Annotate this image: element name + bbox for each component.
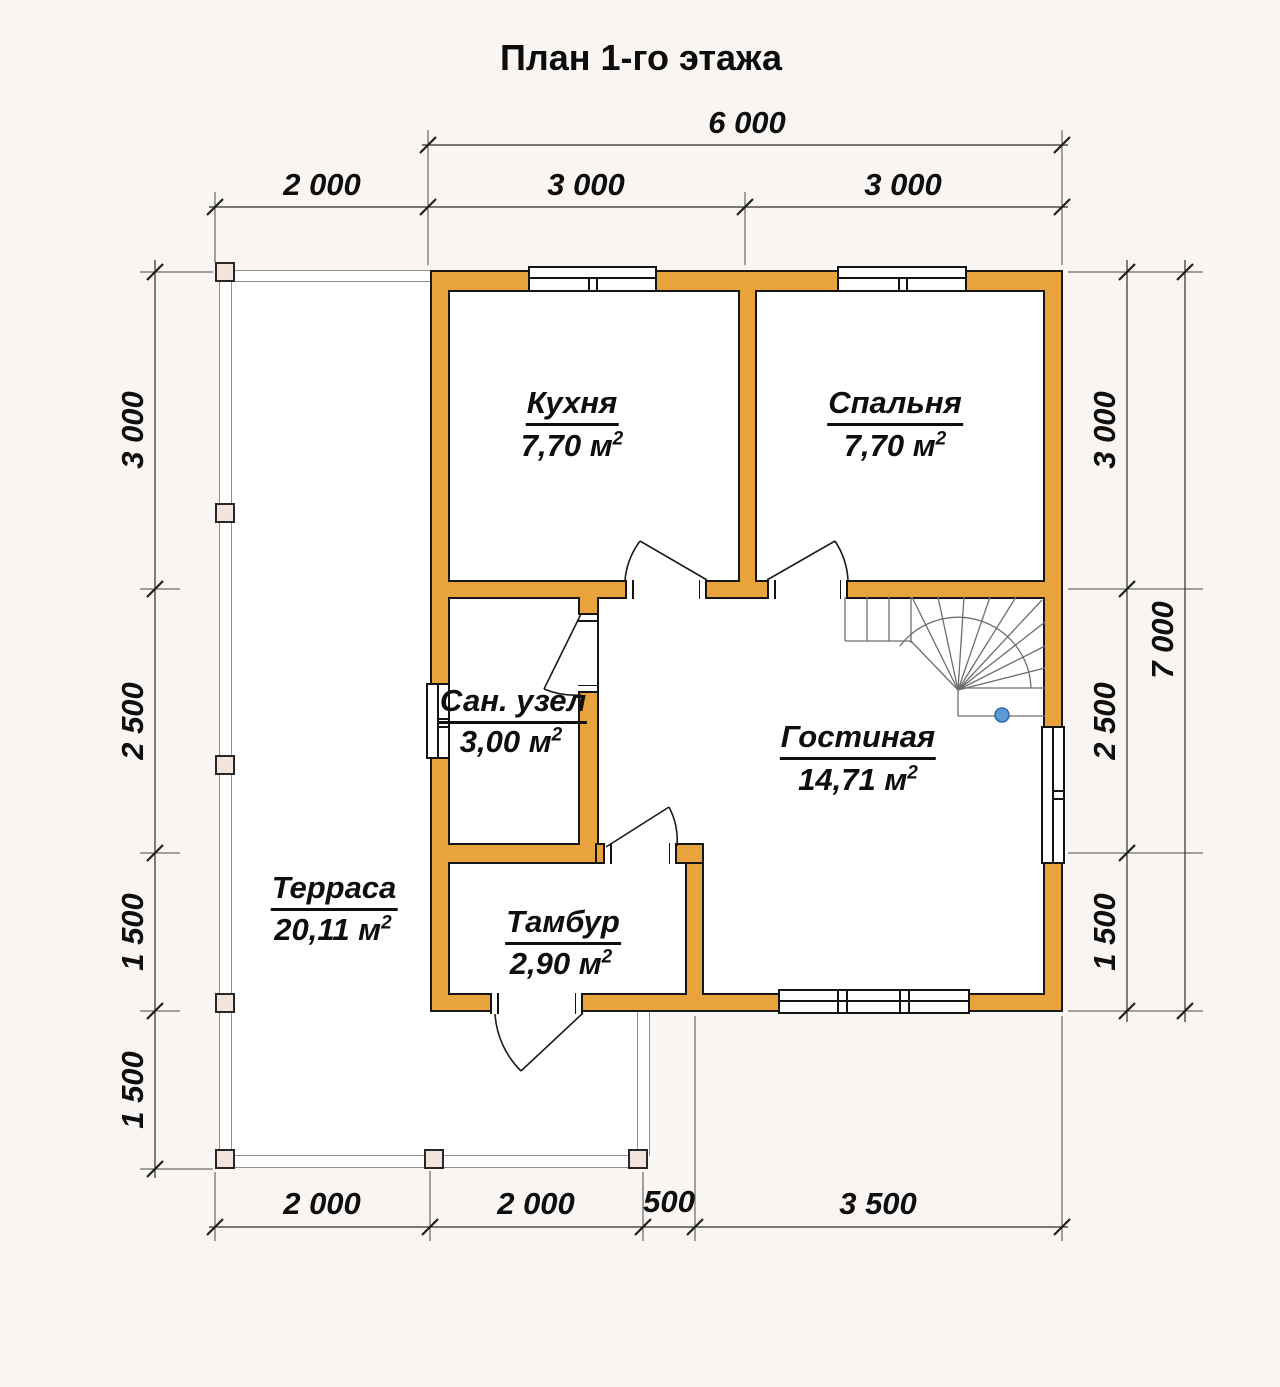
terrace-post xyxy=(215,503,235,523)
room-area-bathroom: 3,00 м2 xyxy=(460,724,562,760)
room-area-bedroom: 7,70 м2 xyxy=(844,428,946,464)
room-area-terrace: 20,11 м2 xyxy=(274,912,391,948)
dim-right-total: 7 000 xyxy=(1145,601,1181,679)
page-title: План 1-го этажа xyxy=(500,37,782,79)
dim-left-3: 1 500 xyxy=(115,1051,151,1129)
porch-post xyxy=(628,1149,648,1169)
dim-right-1: 2 500 xyxy=(1087,682,1123,760)
dim-bottom-2: 500 xyxy=(643,1184,695,1220)
door-opening-kitchen xyxy=(625,580,707,599)
dim-left-0: 3 000 xyxy=(115,391,151,469)
dim-left-1: 2 500 xyxy=(115,682,151,760)
window-kitchen xyxy=(528,266,657,292)
terrace-post xyxy=(215,1149,235,1169)
room-label-living: Гостиная xyxy=(780,719,936,755)
terrace-post xyxy=(215,993,235,1013)
dim-bottom-1: 2 000 xyxy=(497,1186,575,1222)
room-label-kitchen: Кухня xyxy=(526,385,619,421)
dim-top-total: 6 000 xyxy=(708,105,786,141)
room-label-terrace: Терраса xyxy=(271,870,398,906)
terrace-wall-top xyxy=(219,270,430,282)
dim-top-0: 2 000 xyxy=(283,167,361,203)
window-bedroom xyxy=(837,266,967,292)
room-label-bathroom: Сан. узел xyxy=(439,683,587,719)
room-area-kitchen: 7,70 м2 xyxy=(521,428,623,464)
room-label-vestibule: Тамбур xyxy=(505,904,621,940)
door-opening-entrance xyxy=(490,993,583,1014)
dim-top-2: 3 000 xyxy=(864,167,942,203)
dim-right-0: 3 000 xyxy=(1087,391,1123,469)
door-opening-vestibule xyxy=(603,843,677,864)
porch-wall xyxy=(637,1012,650,1156)
door-opening-bedroom xyxy=(767,580,848,599)
room-area-vestibule: 2,90 м2 xyxy=(510,946,612,982)
terrace-post xyxy=(424,1149,444,1169)
door-opening-bathroom xyxy=(578,613,597,693)
window-living-bottom xyxy=(778,989,970,1014)
terrace-post xyxy=(215,262,235,282)
window-living-right xyxy=(1041,726,1065,864)
dim-bottom-0: 2 000 xyxy=(283,1186,361,1222)
room-area-living: 14,71 м2 xyxy=(798,762,918,798)
dim-top-1: 3 000 xyxy=(547,167,625,203)
room-label-bedroom: Спальня xyxy=(827,385,963,421)
dim-bottom-3: 3 500 xyxy=(839,1186,917,1222)
terrace-post xyxy=(215,755,235,775)
dim-left-2: 1 500 xyxy=(115,893,151,971)
wall-vestibule-right xyxy=(689,864,700,995)
room-living-lower xyxy=(702,845,1045,995)
terrace-wall-left xyxy=(219,270,232,1168)
floor-plan-drawing: План 1-го этажа 6 000 2 000 3 000 3 000 … xyxy=(0,0,1280,1387)
dim-right-2: 1 500 xyxy=(1087,893,1123,971)
